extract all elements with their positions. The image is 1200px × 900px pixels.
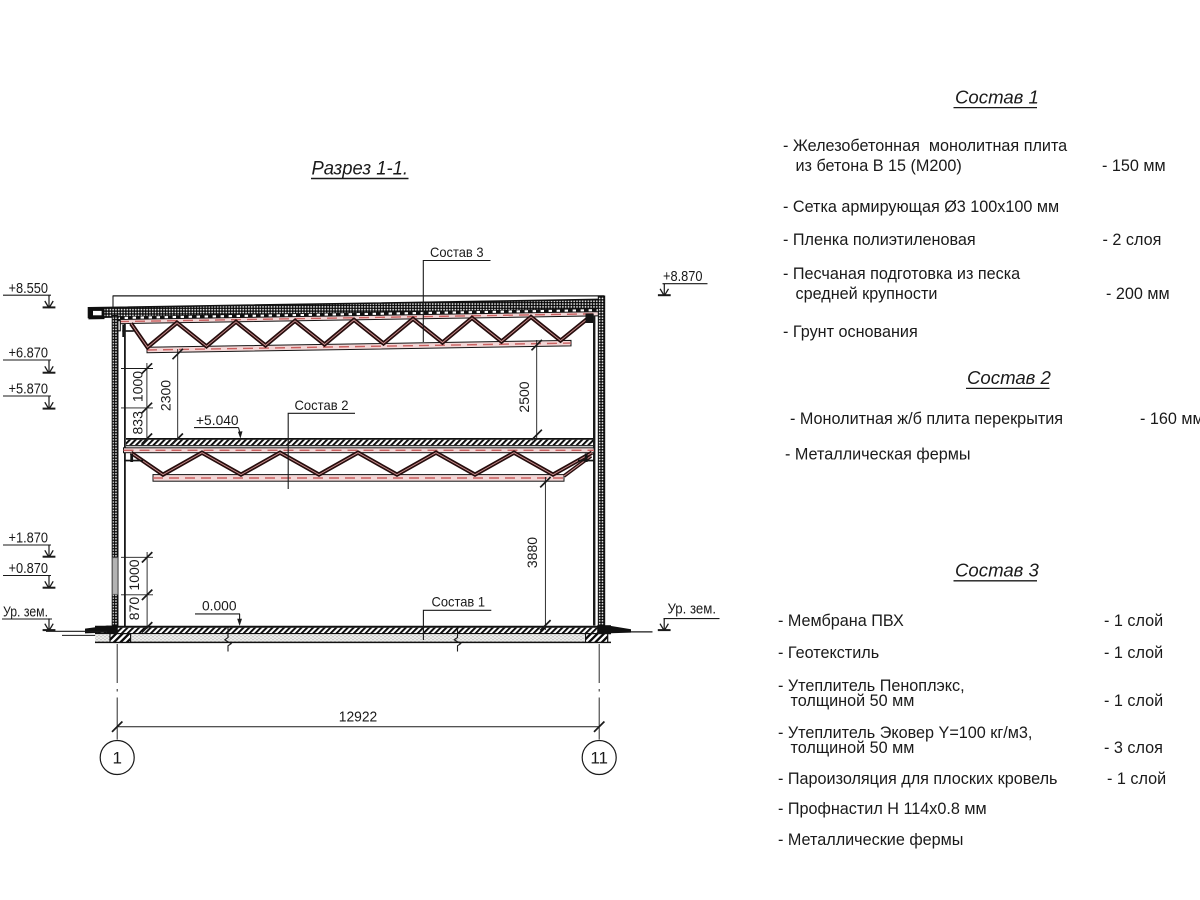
svg-text:Состав 3: Состав 3 (955, 560, 1040, 581)
svg-text:- 3 слоя: - 3 слоя (1104, 739, 1163, 757)
svg-text:+1.870: +1.870 (9, 530, 49, 547)
svg-text:толщиной 50 мм: толщиной 50 мм (791, 692, 915, 710)
svg-text:Состав 2: Состав 2 (295, 398, 349, 413)
svg-text:1: 1 (112, 749, 121, 768)
svg-text:из бетона В 15 (М200): из бетона В 15 (М200) (796, 157, 962, 175)
svg-text:- 1 слой: - 1 слой (1104, 692, 1163, 710)
svg-text:- Грунт основания: - Грунт основания (783, 323, 918, 341)
svg-text:- 150 мм: - 150 мм (1102, 157, 1166, 175)
svg-text:Состав 2: Состав 2 (967, 367, 1052, 388)
svg-text:- 2 слоя: - 2 слоя (1103, 231, 1162, 249)
svg-text:- 200 мм: - 200 мм (1106, 285, 1170, 303)
svg-text:- Песчаная подготовка из песка: - Песчаная подготовка из песка (783, 265, 1020, 283)
svg-text:Разрез 1-1.: Разрез 1-1. (312, 158, 409, 180)
svg-text:2500: 2500 (516, 381, 532, 412)
svg-text:+6.870: +6.870 (9, 345, 49, 362)
svg-text:- Железобетонная монолитная п: - Железобетонная монолитная плита (783, 137, 1067, 155)
svg-text:2300: 2300 (158, 380, 174, 411)
svg-text:+0.870: +0.870 (9, 560, 49, 577)
svg-text:+8.550: +8.550 (9, 280, 49, 297)
svg-text:Ур. зем.: Ур. зем. (668, 601, 717, 618)
svg-text:Состав 1: Состав 1 (955, 87, 1039, 108)
svg-text:Состав 3: Состав 3 (430, 245, 484, 260)
svg-text:- 1 слой: - 1 слой (1107, 770, 1166, 788)
svg-text:3880: 3880 (524, 537, 540, 568)
svg-text:Состав 1: Состав 1 (432, 595, 486, 610)
svg-text:- 1 слой: - 1 слой (1104, 612, 1163, 630)
svg-text:- 160 мм: - 160 мм (1140, 410, 1200, 428)
svg-text:- Металлическая фермы: - Металлическая фермы (785, 446, 971, 464)
svg-text:толщиной 50 мм: толщиной 50 мм (791, 739, 915, 757)
svg-text:833: 833 (130, 411, 146, 435)
svg-text:+8.870: +8.870 (663, 268, 703, 285)
svg-text:0.000: 0.000 (202, 599, 237, 614)
svg-text:- Пароизоляция для плоских кро: - Пароизоляция для плоских кровель (778, 770, 1057, 788)
svg-text:870: 870 (126, 597, 142, 621)
svg-text:- Профнастил Н 114х0.8 мм: - Профнастил Н 114х0.8 мм (778, 800, 987, 818)
svg-text:- Монолитная ж/б плита перекры: - Монолитная ж/б плита перекрытия (790, 410, 1063, 428)
svg-text:1000: 1000 (126, 559, 142, 590)
svg-text:12922: 12922 (339, 709, 378, 726)
svg-text:1000: 1000 (130, 371, 146, 402)
svg-text:11: 11 (590, 749, 608, 768)
svg-text:средней крупности: средней крупности (796, 285, 938, 303)
svg-text:- Мембрана ПВХ: - Мембрана ПВХ (778, 612, 904, 630)
svg-text:+5.040: +5.040 (196, 413, 239, 428)
svg-text:Ур. зем.: Ур. зем. (3, 604, 48, 621)
svg-text:- Сетка армирующая Ø3 100х100: - Сетка армирующая Ø3 100х100 мм (783, 198, 1059, 216)
svg-text:- Пленка полиэтиленовая: - Пленка полиэтиленовая (783, 231, 976, 249)
svg-text:- 1 слой: - 1 слой (1104, 644, 1163, 662)
svg-text:- Геотекстиль: - Геотекстиль (778, 644, 879, 662)
svg-text:- Металлические фермы: - Металлические фермы (778, 831, 963, 849)
svg-text:+5.870: +5.870 (9, 381, 49, 398)
